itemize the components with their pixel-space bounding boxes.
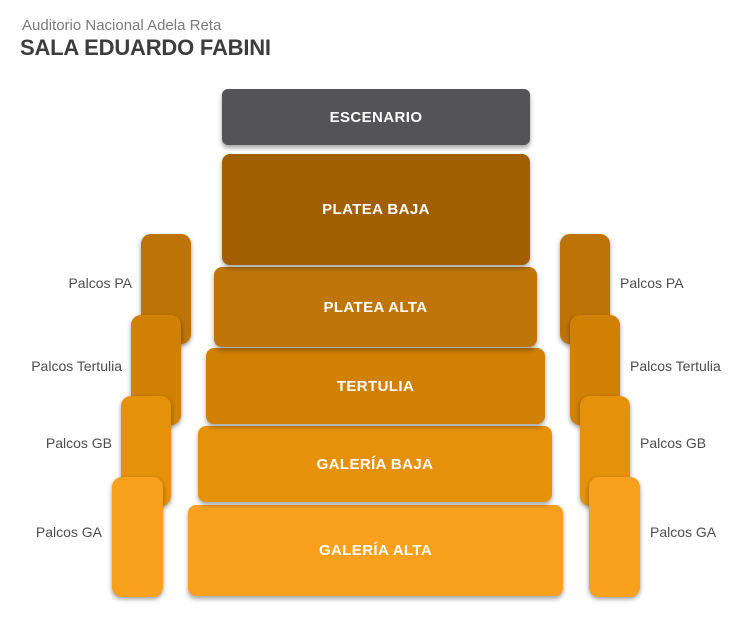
- venue-name: Auditorio Nacional Adela Reta: [22, 16, 221, 36]
- palco-tertulia-left-label: Palcos Tertulia: [31, 357, 122, 375]
- stage-escenario: ESCENARIO: [222, 89, 530, 145]
- palco-gb-left-label: Palcos GB: [46, 434, 112, 452]
- palco-gb-right-label: Palcos GB: [640, 434, 706, 452]
- palco-pa-right-label: Palcos PA: [620, 274, 684, 292]
- section-tertulia[interactable]: TERTULIA: [206, 348, 545, 424]
- palco-pa-left-label: Palcos PA: [68, 274, 132, 292]
- section-galeria-baja[interactable]: GALERÍA BAJA: [198, 426, 552, 502]
- palco-tertulia-right-label: Palcos Tertulia: [630, 357, 721, 375]
- palco-ga-right-label: Palcos GA: [650, 523, 716, 541]
- hall-title: SALA EDUARDO FABINI: [20, 35, 271, 61]
- section-platea-alta[interactable]: PLATEA ALTA: [214, 267, 537, 347]
- section-platea-baja[interactable]: PLATEA BAJA: [222, 154, 530, 265]
- section-galeria-alta[interactable]: GALERÍA ALTA: [188, 505, 563, 596]
- palco-ga-right[interactable]: [589, 477, 640, 597]
- palco-ga-left-label: Palcos GA: [36, 523, 102, 541]
- palco-ga-left[interactable]: [112, 477, 163, 597]
